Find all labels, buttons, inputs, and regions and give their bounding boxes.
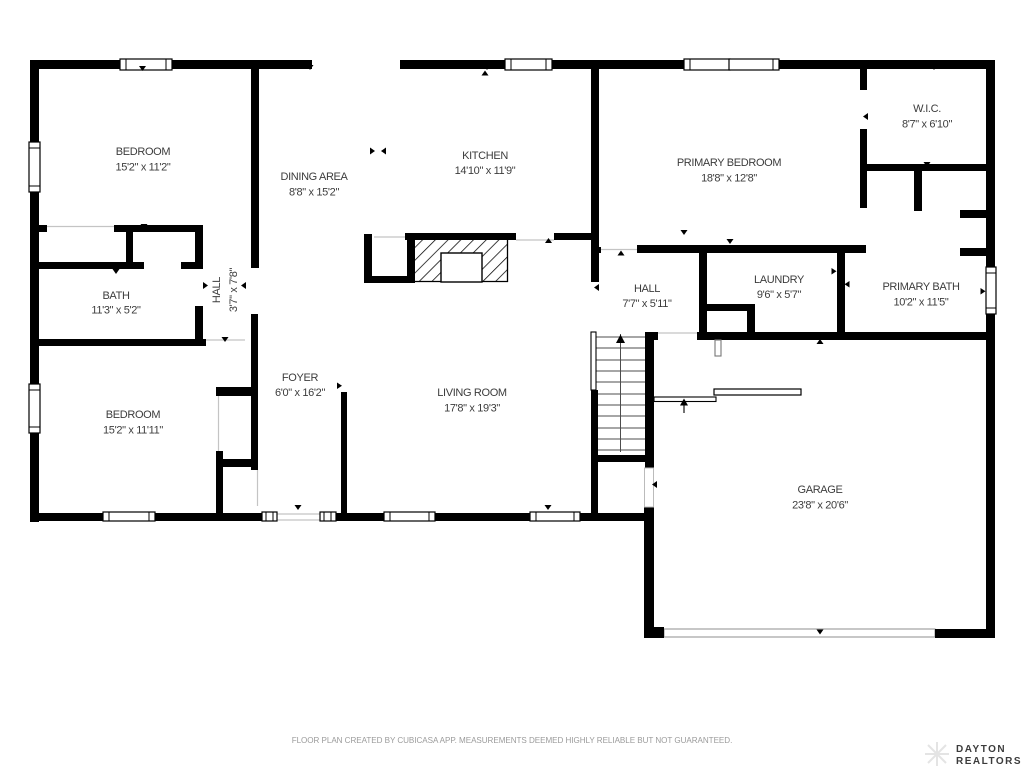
svg-text:3'7" x 7'8": 3'7" x 7'8" [228, 267, 240, 312]
svg-text:BEDROOM: BEDROOM [106, 409, 161, 421]
svg-text:17'8" x 19'3": 17'8" x 19'3" [444, 403, 500, 415]
svg-text:8'8" x 15'2": 8'8" x 15'2" [289, 187, 339, 199]
svg-text:KITCHEN: KITCHEN [462, 150, 508, 162]
svg-text:7'7" x 5'11": 7'7" x 5'11" [622, 298, 672, 310]
svg-text:LAUNDRY: LAUNDRY [754, 274, 805, 286]
svg-text:GARAGE: GARAGE [798, 484, 843, 496]
svg-text:14'10" x 11'9": 14'10" x 11'9" [455, 165, 516, 177]
svg-text:HALL: HALL [634, 283, 660, 295]
svg-text:FLOOR PLAN CREATED BY CUBICASA: FLOOR PLAN CREATED BY CUBICASA APP. MEAS… [292, 736, 733, 745]
svg-text:PRIMARY BEDROOM: PRIMARY BEDROOM [677, 157, 782, 169]
svg-text:10'2" x 11'5": 10'2" x 11'5" [894, 297, 949, 309]
svg-text:DAYTON: DAYTON [956, 744, 1006, 755]
svg-text:9'6" x 5'7": 9'6" x 5'7" [757, 289, 802, 301]
svg-text:BATH: BATH [102, 290, 130, 302]
svg-text:HALL: HALL [211, 277, 223, 303]
svg-text:FOYER: FOYER [282, 372, 319, 384]
svg-text:LIVING ROOM: LIVING ROOM [437, 387, 507, 399]
svg-text:15'2" x 11'2": 15'2" x 11'2" [116, 162, 171, 174]
svg-text:REALTORS: REALTORS [956, 756, 1022, 767]
svg-text:W.I.C.: W.I.C. [913, 103, 941, 115]
svg-text:BEDROOM: BEDROOM [116, 146, 171, 158]
svg-text:23'8" x 20'6": 23'8" x 20'6" [792, 500, 848, 512]
svg-text:15'2" x 11'11": 15'2" x 11'11" [103, 425, 163, 437]
svg-text:11'3" x 5'2": 11'3" x 5'2" [91, 305, 141, 317]
svg-text:PRIMARY BATH: PRIMARY BATH [882, 281, 960, 293]
svg-text:6'0" x 16'2": 6'0" x 16'2" [275, 387, 325, 399]
svg-text:DINING AREA: DINING AREA [280, 171, 348, 183]
svg-text:8'7" x 6'10": 8'7" x 6'10" [902, 119, 952, 131]
svg-text:18'8" x 12'8": 18'8" x 12'8" [701, 173, 757, 185]
